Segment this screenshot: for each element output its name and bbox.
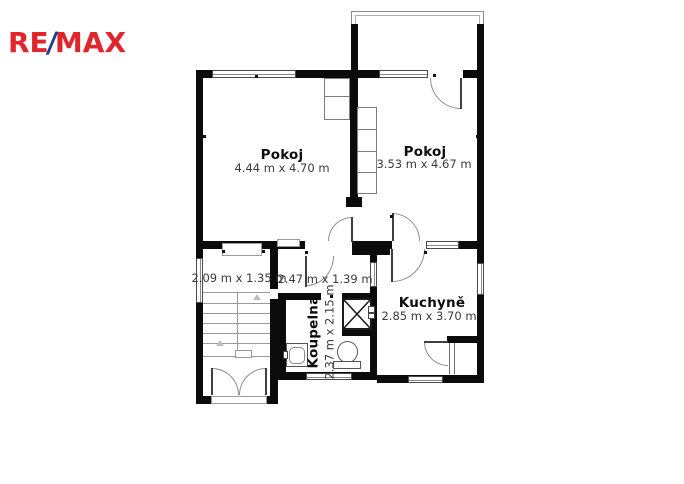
door-leaf <box>265 368 267 395</box>
wall-dot <box>433 74 436 77</box>
room-dims-landing: 2.09 m x 1.35 m <box>191 271 286 285</box>
wall-dot <box>424 251 427 254</box>
room-label-koupelna-group: Koupelna 2.37 m x 2.15 m <box>305 284 336 379</box>
wall-dot <box>262 250 265 253</box>
window-kitchen-side <box>477 263 484 295</box>
wall-niche <box>222 243 262 256</box>
window <box>379 70 428 78</box>
toilet-bowl <box>337 341 358 363</box>
entry-door-arc-right <box>239 368 266 395</box>
wall-closet-stub <box>447 336 480 343</box>
room-dims-pokoj-right: 3.53 m x 4.67 m <box>376 157 471 171</box>
wall-bathroom-left <box>278 293 286 372</box>
remax-logo: RE/MAX <box>8 26 126 59</box>
shelf-line <box>357 172 377 173</box>
wall-chunk <box>352 241 390 255</box>
closet-line <box>454 343 455 374</box>
toilet-cistern <box>333 361 361 369</box>
wardrobe-divider <box>324 96 350 97</box>
window-internal <box>426 241 459 249</box>
closet-line <box>449 343 450 374</box>
wall <box>477 24 484 71</box>
stair-newel <box>235 350 252 358</box>
door-leaf <box>391 249 393 282</box>
entry-door-arc-left <box>212 368 239 395</box>
balcony-inner-line <box>355 15 480 71</box>
entry-threshold <box>211 396 267 404</box>
wall <box>351 24 358 71</box>
stair-divider <box>237 292 238 357</box>
window <box>212 70 296 78</box>
door-arc-kitchen <box>392 249 425 282</box>
door-leaf <box>424 341 448 343</box>
wall-left <box>196 70 203 404</box>
window-kitchen <box>408 376 443 383</box>
shelf-line <box>357 129 377 130</box>
floorplan-canvas: RE/MAX <box>0 0 684 484</box>
door-arc-left-room <box>328 217 352 241</box>
wall-niche <box>277 239 300 247</box>
door-arc-right-room <box>392 213 420 241</box>
door-leaf <box>460 78 462 109</box>
wall-dot <box>459 244 462 247</box>
sink-bowl <box>289 347 305 364</box>
wardrobe <box>324 78 350 120</box>
wall-dot <box>305 251 308 254</box>
wall-room-divider-jog <box>346 197 362 207</box>
wall-dot <box>390 215 393 218</box>
room-dims-kuchyne: 2.85 m x 3.70 m <box>381 309 476 323</box>
shaft-valve <box>368 313 375 319</box>
door-arc-closet <box>424 342 448 366</box>
shaft-x-icon <box>344 300 370 328</box>
door-arc-balcony <box>430 78 461 109</box>
wall-dot <box>203 135 206 138</box>
door-opening <box>392 241 426 249</box>
wall-dot <box>255 75 258 78</box>
wall-shaft-bottom <box>342 330 372 336</box>
passage-opening <box>270 289 278 299</box>
wall-stairwell-right <box>270 299 278 404</box>
logo-re: RE <box>8 26 49 59</box>
logo-max: MAX <box>55 26 126 59</box>
door-leaf <box>211 368 213 395</box>
shelf-line <box>357 151 377 152</box>
room-label-koupelna: Koupelna <box>305 284 322 379</box>
stair-direction-arrow <box>253 294 261 300</box>
stair-direction-arrow <box>216 340 224 346</box>
wall-dot <box>352 251 355 254</box>
shaft-valve <box>368 306 375 313</box>
room-dims-pokoj-left: 4.44 m x 4.70 m <box>234 161 329 175</box>
door-opening <box>328 241 352 249</box>
door-leaf <box>351 217 353 242</box>
wall-dot <box>222 250 225 253</box>
room-dims-koupelna: 2.37 m x 2.15 m <box>322 284 336 379</box>
wall-dot <box>476 135 479 138</box>
sink-tap <box>283 351 288 359</box>
